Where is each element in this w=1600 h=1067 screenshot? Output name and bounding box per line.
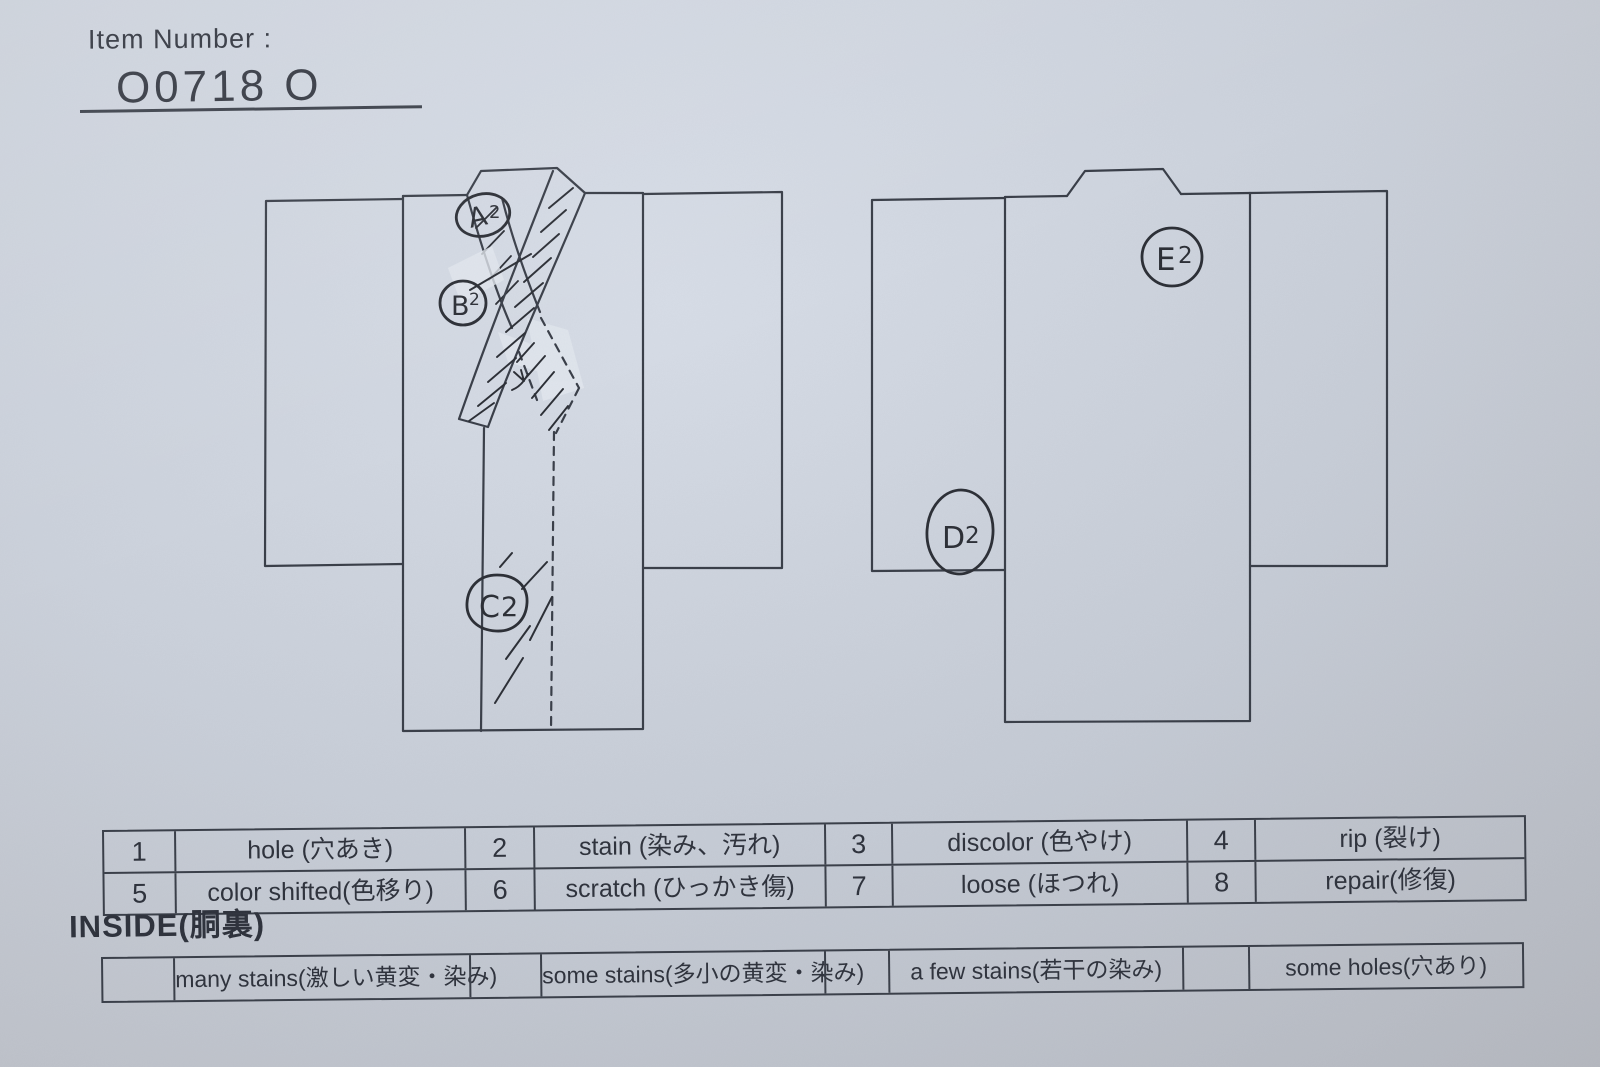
annotation-d2: D 2 xyxy=(924,488,996,576)
front-left-sleeve xyxy=(265,199,403,566)
legend-label: hole (穴あき) xyxy=(174,828,464,871)
annotation-c2-digit: 2 xyxy=(501,592,518,623)
inside-label: some stains(多小の黄変・染み) xyxy=(540,951,824,996)
front-back-collar xyxy=(467,168,585,195)
legend-code: 7 xyxy=(824,866,891,907)
inside-label: some holes(穴あり) xyxy=(1248,944,1522,989)
annotation-b2-letter: B xyxy=(451,291,470,322)
legend-code: 3 xyxy=(824,824,891,865)
legend-code: 1 xyxy=(104,831,174,872)
back-body-top-edge xyxy=(1005,193,1250,197)
front-body-top-edge xyxy=(403,193,643,196)
inside-checkbox-cell xyxy=(824,951,888,994)
legend-label: loose (ほつれ) xyxy=(891,863,1186,906)
damage-legend-table: 1 hole (穴あき) 2 stain (染み、汚れ) 3 discolor … xyxy=(102,815,1527,916)
annotation-a2-letter: A xyxy=(466,200,491,234)
annotation-e2-letter: E xyxy=(1156,242,1176,278)
front-right-sleeve xyxy=(643,192,782,568)
legend-label: scratch (ひっかき傷) xyxy=(533,866,824,909)
legend-code: 4 xyxy=(1186,820,1254,861)
inside-label: many stains(激しい黄変・染み) xyxy=(173,955,469,1000)
inside-checkbox-cell xyxy=(103,958,173,1001)
front-center-dashed-line xyxy=(551,432,554,731)
legend-label: rip (裂け) xyxy=(1254,817,1524,860)
back-right-sleeve xyxy=(1250,191,1387,566)
annotation-e2-digit: 2 xyxy=(1178,243,1193,269)
inside-section-heading: INSIDE(胴裏) xyxy=(69,899,266,947)
photographed-inspection-sheet: Item Number : O0718 O xyxy=(0,0,1600,1067)
annotation-d2-digit: 2 xyxy=(965,523,980,549)
inside-checkbox-cell xyxy=(1182,947,1248,990)
legend-code: 6 xyxy=(464,869,533,910)
annotation-a2-digit: 2 xyxy=(489,202,500,223)
legend-code: 8 xyxy=(1186,862,1254,903)
kimono-front-diagram: A 2 B 2 C 2 xyxy=(265,168,782,731)
annotation-c2-letter: C xyxy=(479,590,500,625)
inside-checkbox-cell xyxy=(469,954,540,997)
inside-label: a few stains(若干の染み) xyxy=(888,948,1182,993)
legend-label: repair(修復) xyxy=(1254,859,1524,902)
front-body-outline xyxy=(403,193,643,731)
annotation-c2: C 2 xyxy=(467,575,527,631)
back-collar xyxy=(1067,169,1181,196)
legend-label: discolor (色やけ) xyxy=(891,821,1186,864)
annotation-d2-letter: D xyxy=(942,521,965,556)
legend-code: 2 xyxy=(464,827,533,868)
back-left-sleeve xyxy=(872,198,1005,571)
back-body-outline xyxy=(1005,193,1250,722)
legend-label: stain (染み、汚れ) xyxy=(533,824,824,867)
annotation-e2: E 2 xyxy=(1142,228,1202,286)
kimono-back-diagram: D 2 E 2 xyxy=(872,169,1387,722)
annotation-b2-digit: 2 xyxy=(469,290,480,310)
